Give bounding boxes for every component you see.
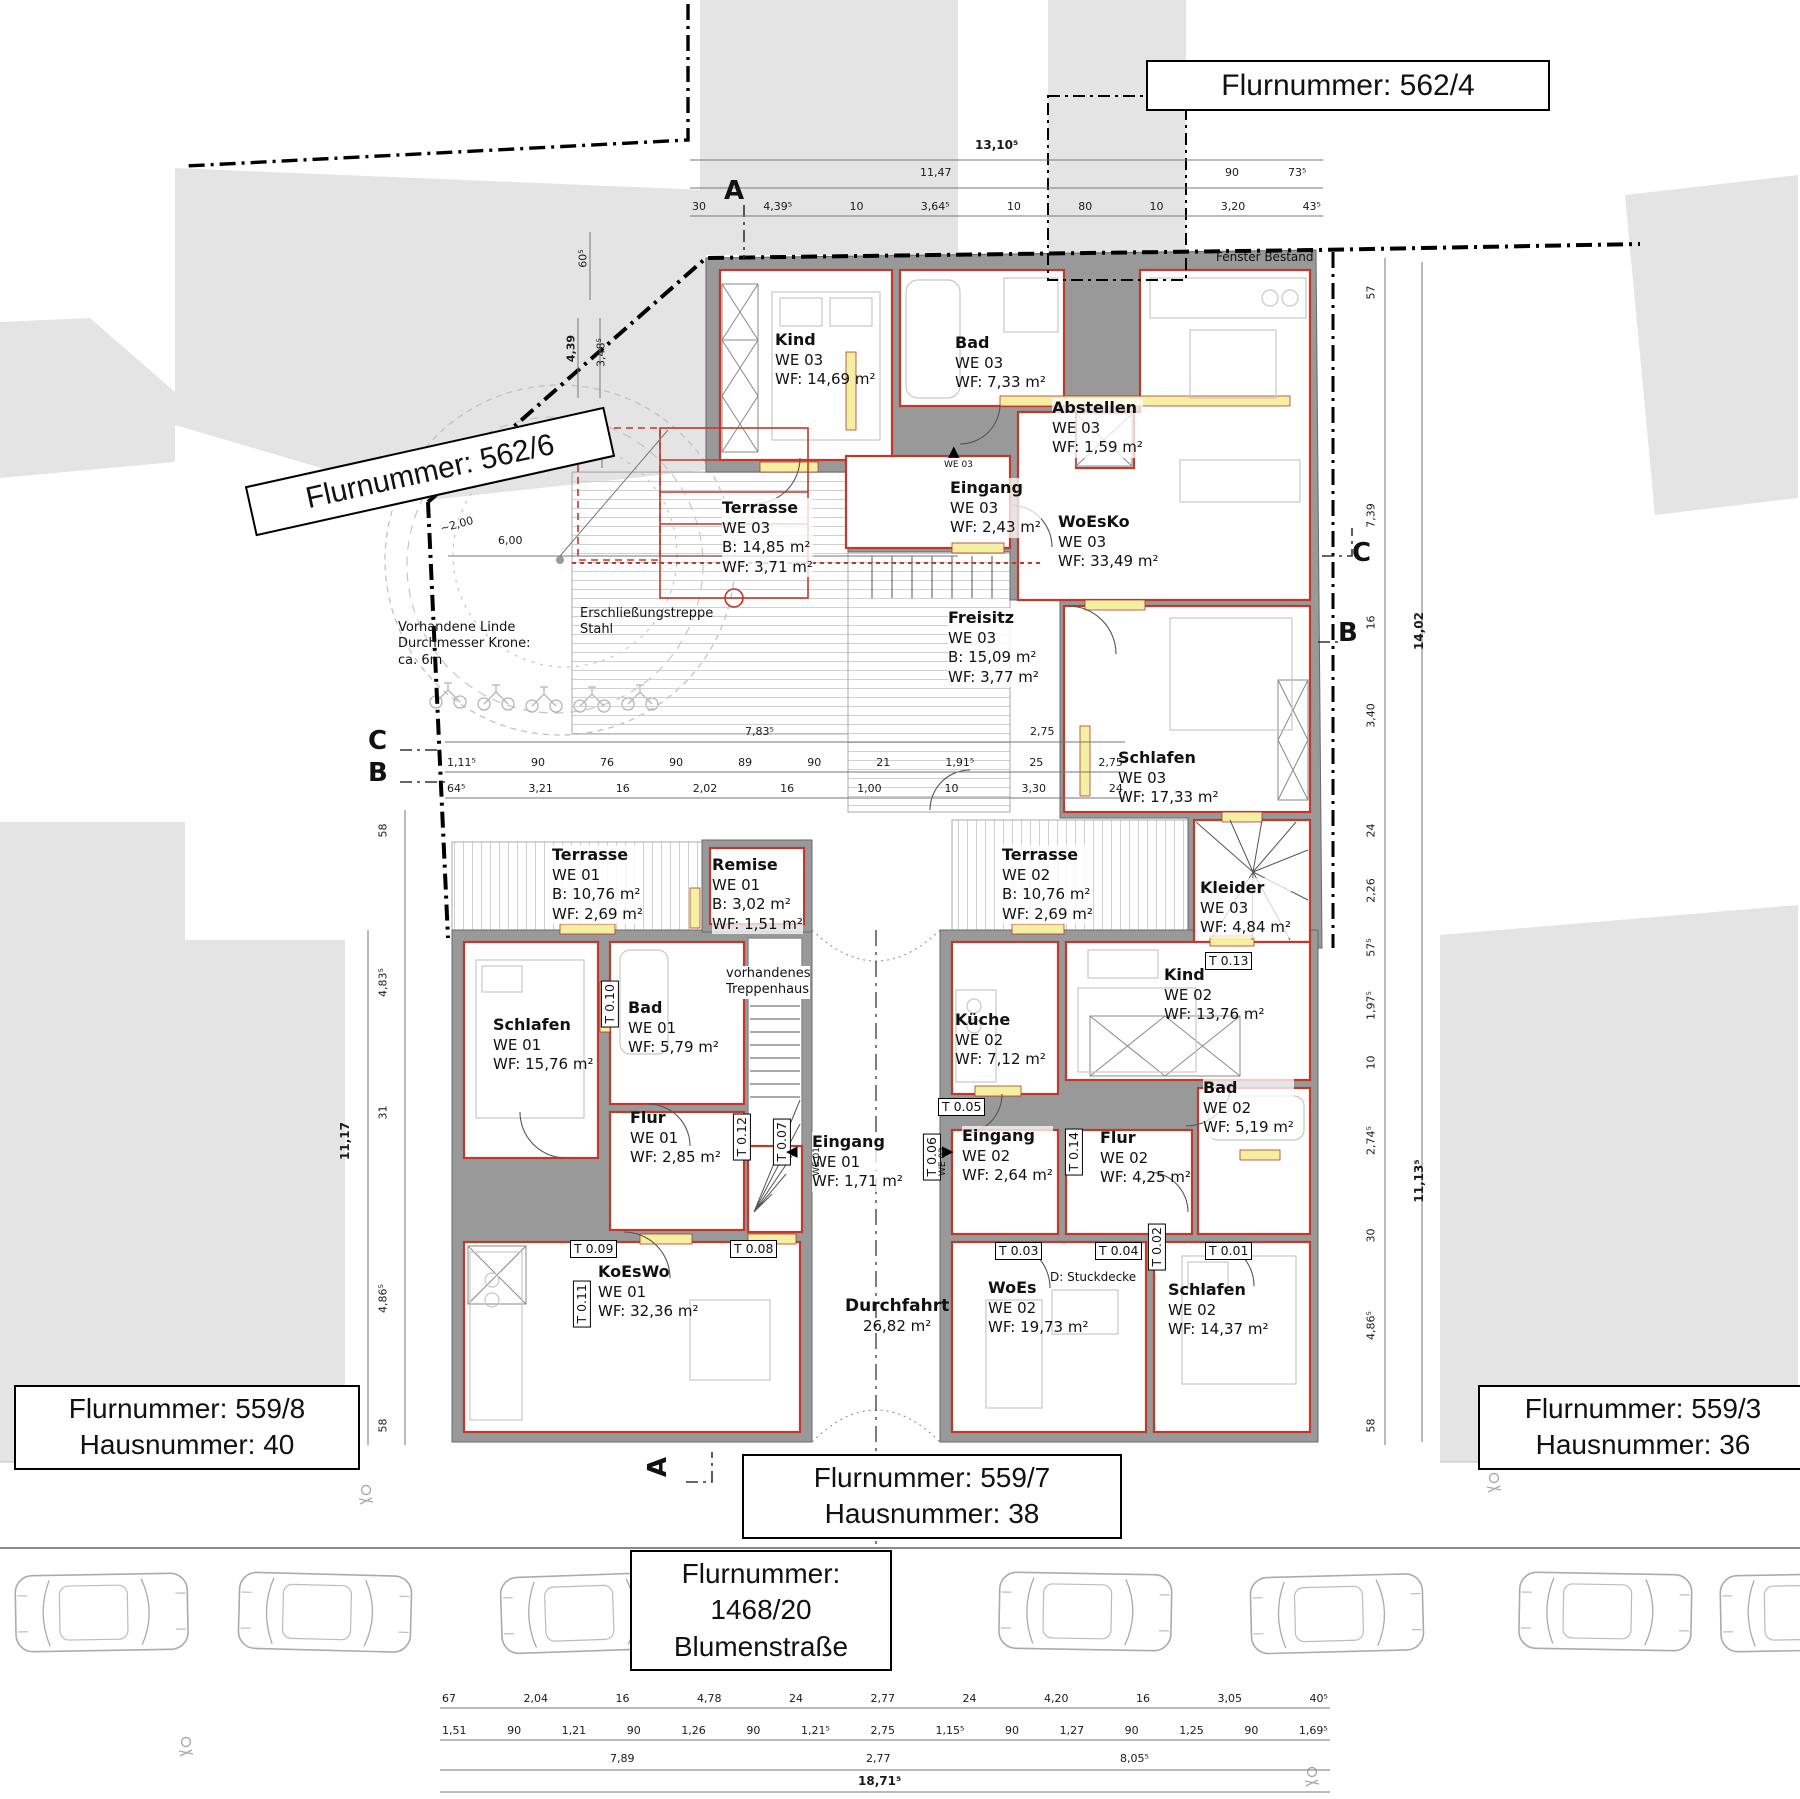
room-label-schlafen-we02: SchlafenWE 02 WF: 14,37 m² xyxy=(1168,1280,1268,1340)
room-info: WE 03 B: 15,09 m² WF: 3,77 m² xyxy=(948,629,1039,688)
room-name: Flur xyxy=(630,1108,721,1129)
dim-tree-6-00: 6,00 xyxy=(498,534,523,547)
dimension-value: 1,69⁵ xyxy=(1297,1724,1330,1737)
parcel-559-7-hausnummer: Hausnummer: 38 xyxy=(754,1496,1110,1532)
room-name: Schlafen xyxy=(1118,748,1218,769)
entry-tag-we02: WE 02 xyxy=(938,1147,948,1176)
dim-right-1: 57 xyxy=(1365,270,1378,316)
dim-top-total: 13,10⁵ xyxy=(975,138,1018,152)
dim-2-75-mid: 2,75 xyxy=(1030,725,1055,738)
room-name: Abstellen xyxy=(1052,398,1143,419)
dimension-value: 4,78 xyxy=(695,1692,724,1705)
dim-chain-bottom-row2: 1,51901,21901,26901,21⁵2,751,15⁵901,2790… xyxy=(440,1724,1330,1737)
door-tag-t0-08: T 0.08 xyxy=(730,1240,777,1258)
dimension-value: 1,11⁵ xyxy=(445,756,478,769)
dimension-value: 1,25 xyxy=(1177,1724,1206,1737)
street-flurnummer: Flurnummer: xyxy=(642,1556,880,1592)
dim-right-total-lower: 11,13⁵ xyxy=(1412,1158,1426,1204)
room-info: WE 03 WF: 1,59 m² xyxy=(1052,419,1143,458)
room-info: WE 01 WF: 15,76 m² xyxy=(493,1036,593,1075)
street-name: Blumenstraße xyxy=(642,1629,880,1665)
door-tag-t0-04: T 0.04 xyxy=(1095,1242,1142,1260)
car-icons xyxy=(15,1572,1800,1654)
room-label-freisitz-we03: FreisitzWE 03 B: 15,09 m² WF: 3,77 m² xyxy=(948,608,1039,687)
room-label-eingang-we01: EingangWE 01 WF: 1,71 m² xyxy=(812,1132,903,1192)
room-name: Küche xyxy=(955,1010,1046,1031)
dimension-value: 10 xyxy=(847,200,865,213)
annotation-treppenhaus: vorhandenes Treppenhaus xyxy=(726,966,810,999)
room-info: WE 02 WF: 5,19 m² xyxy=(1203,1099,1294,1138)
room-label-flur-we01: FlurWE 01 WF: 2,85 m² xyxy=(630,1108,721,1168)
dim-tree-60-5: 60⁵ xyxy=(577,236,590,282)
door-tag-t0-02: T 0.02 xyxy=(1148,1223,1166,1270)
dim-2-77-bottom: 2,77 xyxy=(866,1752,891,1765)
dim-8-05-5: 8,05⁵ xyxy=(1120,1752,1149,1765)
street-label-blumenstrasse: Flurnummer: 1468/20 Blumenstraße xyxy=(630,1550,892,1671)
parcel-559-3-hausnummer: Hausnummer: 36 xyxy=(1490,1427,1796,1463)
dim-right-12: 4,86⁵ xyxy=(1365,1303,1378,1349)
dimension-value: 1,91⁵ xyxy=(943,756,976,769)
dim-right-11: 30 xyxy=(1365,1213,1378,1259)
room-info: WE 03 WF: 17,33 m² xyxy=(1118,769,1218,808)
door-tag-t0-12: T 0.12 xyxy=(733,1113,751,1160)
annotation-linde: Vorhandene Linde Durchmesser Krone: ca. … xyxy=(398,620,531,669)
room-name: Flur xyxy=(1100,1128,1191,1149)
room-label-durchfahrt: Durchfahrt26,82 m² xyxy=(845,1295,949,1337)
room-info: WE 02 WF: 13,76 m² xyxy=(1164,986,1264,1025)
room-info: WE 01 WF: 5,79 m² xyxy=(628,1019,719,1058)
parcel-label-562-4: Flurnummer: 562/4 xyxy=(1146,60,1550,111)
dim-left-2: 4,83⁵ xyxy=(377,960,390,1006)
dimension-value: 3,21 xyxy=(526,782,555,795)
dimension-value: 3,05 xyxy=(1216,1692,1245,1705)
room-name: Kind xyxy=(775,330,875,351)
room-name: KoEsWo xyxy=(598,1262,698,1283)
room-info: WE 03 WF: 33,49 m² xyxy=(1058,533,1158,572)
room-label-abstellen-we03: AbstellenWE 03 WF: 1,59 m² xyxy=(1052,398,1143,458)
dimension-value: 16 xyxy=(778,782,796,795)
annotation-stuckdecke: D: Stuckdecke xyxy=(1050,1270,1136,1285)
dimension-value: 89 xyxy=(736,756,754,769)
dim-right-3: 16 xyxy=(1365,600,1378,646)
durchfahrt-lines xyxy=(812,930,940,1545)
dim-7-83-5: 7,83⁵ xyxy=(745,725,774,738)
dimension-value: 24 xyxy=(961,1692,979,1705)
room-label-bad-we02: BadWE 02 WF: 5,19 m² xyxy=(1203,1078,1294,1138)
room-label-schlafen-we01: SchlafenWE 01 WF: 15,76 m² xyxy=(493,1015,593,1075)
dim-left-1: 58 xyxy=(377,808,390,854)
room-info: WE 01 WF: 2,85 m² xyxy=(630,1129,721,1168)
room-info: WE 02 WF: 4,25 m² xyxy=(1100,1149,1191,1188)
room-info: WE 03 B: 14,85 m² WF: 3,71 m² xyxy=(722,519,813,578)
parcel-559-7-flurnummer: Flurnummer: 559/7 xyxy=(754,1460,1110,1496)
dimension-value: 1,21 xyxy=(560,1724,589,1737)
door-tag-t0-01: T 0.01 xyxy=(1205,1242,1252,1260)
dimension-value: 21 xyxy=(874,756,892,769)
dimension-value: 90 xyxy=(805,756,823,769)
entry-arrow-we03-icon: ▲ xyxy=(948,442,960,460)
room-info: WE 03 WF: 7,33 m² xyxy=(955,354,1046,393)
room-info: WE 01 B: 3,02 m² WF: 1,51 m² xyxy=(712,876,803,935)
dimension-value: 76 xyxy=(598,756,616,769)
room-info: WE 01 WF: 32,36 m² xyxy=(598,1283,698,1322)
door-tag-t0-11: T 0.11 xyxy=(573,1280,591,1327)
dim-right-4: 3,40 xyxy=(1365,693,1378,739)
parcel-label-559-7: Flurnummer: 559/7 Hausnummer: 38 xyxy=(742,1454,1122,1539)
dim-right-8: 1,97⁵ xyxy=(1365,983,1378,1029)
room-info: WE 02 WF: 19,73 m² xyxy=(988,1299,1088,1338)
dimension-value: 64⁵ xyxy=(445,782,467,795)
dimension-value: 1,15⁵ xyxy=(934,1724,967,1737)
room-label-kind-we03: KindWE 03 WF: 14,69 m² xyxy=(775,330,875,390)
dim-right-13: 58 xyxy=(1365,1403,1378,1449)
dimension-value: 1,00 xyxy=(855,782,884,795)
room-name: Eingang xyxy=(812,1132,903,1153)
room-label-terrasse-we03: TerrasseWE 03 B: 14,85 m² WF: 3,71 m² xyxy=(722,498,813,577)
dimension-value: 90 xyxy=(667,756,685,769)
room-name: Kleider xyxy=(1200,878,1291,899)
dimension-value: 90 xyxy=(744,1724,762,1737)
room-name: Freisitz xyxy=(948,608,1039,629)
door-tag-t0-13: T 0.13 xyxy=(1205,952,1252,970)
room-name: Terrasse xyxy=(1002,845,1093,866)
room-name: Durchfahrt xyxy=(845,1295,949,1317)
section-marker-b-left: B xyxy=(368,758,388,788)
dimension-value: 90 xyxy=(505,1724,523,1737)
room-info: WE 01 B: 10,76 m² WF: 2,69 m² xyxy=(552,866,643,925)
dimension-value: 16 xyxy=(614,1692,632,1705)
dim-left-4: 4,86⁵ xyxy=(377,1276,390,1322)
annotation-stahltreppe: Erschließungstreppe Stahl xyxy=(580,606,713,639)
section-marker-a-top: A xyxy=(724,176,744,206)
parcel-559-8-hausnummer: Hausnummer: 40 xyxy=(26,1427,348,1463)
dimension-value: 1,27 xyxy=(1058,1724,1087,1737)
dimension-value: 16 xyxy=(1134,1692,1152,1705)
room-name: Schlafen xyxy=(493,1015,593,1036)
room-info: WE 03 WF: 14,69 m² xyxy=(775,351,875,390)
dim-73-5: 73⁵ xyxy=(1288,166,1306,179)
dimension-value: 43⁵ xyxy=(1301,200,1323,213)
dimension-value: 90 xyxy=(1242,1724,1260,1737)
room-label-kueche-we02: KücheWE 02 WF: 7,12 m² xyxy=(955,1010,1046,1070)
section-marker-b-right: B xyxy=(1338,618,1358,648)
room-info: WE 03 WF: 2,43 m² xyxy=(950,499,1041,538)
dimension-value: 2,02 xyxy=(691,782,720,795)
room-label-terrasse-we02: TerrasseWE 02 B: 10,76 m² WF: 2,69 m² xyxy=(1002,845,1093,924)
room-label-woes-we02: WoEsWE 02 WF: 19,73 m² xyxy=(988,1278,1088,1338)
room-name: Bad xyxy=(1203,1078,1294,1099)
dimension-value: 10 xyxy=(1005,200,1023,213)
dimension-value: 30 xyxy=(690,200,708,213)
room-label-woesko-we03: WoEsKoWE 03 WF: 33,49 m² xyxy=(1058,512,1158,572)
room-label-schlafen-we03: SchlafenWE 03 WF: 17,33 m² xyxy=(1118,748,1218,808)
dim-right-9: 10 xyxy=(1365,1040,1378,1086)
dim-tree-3-48-5: 3,48⁵ xyxy=(595,330,608,376)
dim-right-10: 2,74⁵ xyxy=(1365,1118,1378,1164)
dim-bottom-total: 18,71⁵ xyxy=(858,1774,901,1788)
dimension-value: 2,75 xyxy=(868,1724,897,1737)
dimension-value: 80 xyxy=(1076,200,1094,213)
entry-tag-we01: WE 01 xyxy=(812,1147,822,1176)
dim-left-5: 58 xyxy=(377,1403,390,1449)
dim-chain-top-row3: 304,39⁵103,64⁵1080103,2043⁵ xyxy=(690,200,1323,213)
dimension-value: 3,30 xyxy=(1019,782,1048,795)
room-name: Eingang xyxy=(962,1126,1053,1147)
dimension-value: 4,39⁵ xyxy=(761,200,794,213)
room-label-flur-we02: FlurWE 02 WF: 4,25 m² xyxy=(1100,1128,1191,1188)
room-info: WE 02 B: 10,76 m² WF: 2,69 m² xyxy=(1002,866,1093,925)
dimension-value: 10 xyxy=(1148,200,1166,213)
dimension-value: 2,04 xyxy=(522,1692,551,1705)
room-label-terrasse-we01: TerrasseWE 01 B: 10,76 m² WF: 2,69 m² xyxy=(552,845,643,924)
dim-chain-mid-row3: 64⁵3,21162,02161,00103,3024 xyxy=(445,782,1125,795)
dim-right-2: 7,39 xyxy=(1365,493,1378,539)
dimension-value: 16 xyxy=(614,782,632,795)
entry-arrow-we01-icon: ◀ xyxy=(786,1142,798,1160)
room-info: WE 02 WF: 2,64 m² xyxy=(962,1147,1053,1186)
section-marker-c-right: C xyxy=(1352,538,1371,568)
room-label-bad-we03: BadWE 03 WF: 7,33 m² xyxy=(955,333,1046,393)
dimension-value: 2,77 xyxy=(869,1692,898,1705)
parcel-label-559-8: Flurnummer: 559/8 Hausnummer: 40 xyxy=(14,1385,360,1470)
dim-left-total: 11,17 xyxy=(338,1118,352,1164)
dimension-value: 67 xyxy=(440,1692,458,1705)
dim-right-6: 2,26 xyxy=(1365,868,1378,914)
door-tag-t0-05: T 0.05 xyxy=(938,1098,985,1116)
street-parcel-number: 1468/20 xyxy=(642,1592,880,1628)
dimension-value: 10 xyxy=(943,782,961,795)
floor-plan-canvas: Flurnummer: 562/4 Flurnummer: 562/6 Flur… xyxy=(0,0,1800,1799)
dimension-value: 1,51 xyxy=(440,1724,469,1737)
room-label-bad-we01: BadWE 01 WF: 5,79 m² xyxy=(628,998,719,1058)
room-info: WE 01 WF: 1,71 m² xyxy=(812,1153,903,1192)
dimension-value: 3,20 xyxy=(1219,200,1248,213)
room-name: Terrasse xyxy=(552,845,643,866)
room-name: Bad xyxy=(955,333,1046,354)
dim-11-47: 11,47 xyxy=(920,166,952,179)
dimension-value: 25 xyxy=(1027,756,1045,769)
room-info: WE 03 WF: 4,84 m² xyxy=(1200,899,1291,938)
dimension-value: 3,64⁵ xyxy=(919,200,952,213)
door-tag-t0-03: T 0.03 xyxy=(995,1242,1042,1260)
annotation-fenster-bestand: Fenster Bestand xyxy=(1216,250,1313,265)
dim-chain-mid-row2: 1,11⁵9076908990211,91⁵252,75 xyxy=(445,756,1125,769)
entry-tag-we03: WE 03 xyxy=(944,460,973,470)
room-name: WoEsKo xyxy=(1058,512,1158,533)
room-name: Remise xyxy=(712,855,803,876)
parcel-label-559-3: Flurnummer: 559/3 Hausnummer: 36 xyxy=(1478,1385,1800,1470)
room-label-kleider-we03: KleiderWE 03 WF: 4,84 m² xyxy=(1200,878,1291,938)
dim-7-89: 7,89 xyxy=(610,1752,635,1765)
door-tag-t0-09: T 0.09 xyxy=(570,1240,617,1258)
dim-right-total-upper: 14,02 xyxy=(1412,608,1426,654)
room-label-kind-we02: KindWE 02 WF: 13,76 m² xyxy=(1164,965,1264,1025)
dim-tree-4-39: 4,39 xyxy=(565,326,578,372)
room-label-koeswo-we01: KoEsWoWE 01 WF: 32,36 m² xyxy=(598,1262,698,1322)
door-tag-t0-10: T 0.10 xyxy=(601,980,619,1027)
door-tag-t0-14: T 0.14 xyxy=(1065,1128,1083,1175)
dim-90-top: 90 xyxy=(1225,166,1239,179)
dimension-value: 1,26 xyxy=(679,1724,708,1737)
section-marker-c-left: C xyxy=(368,726,387,756)
dimension-value: 40⁵ xyxy=(1308,1692,1330,1705)
dimension-value: 24 xyxy=(787,1692,805,1705)
dimension-value: 90 xyxy=(529,756,547,769)
dimension-value: 90 xyxy=(625,1724,643,1737)
dimension-value: 1,21⁵ xyxy=(799,1724,832,1737)
room-name: Schlafen xyxy=(1168,1280,1268,1301)
room-name: Terrasse xyxy=(722,498,813,519)
room-name: Eingang xyxy=(950,478,1041,499)
dim-right-7: 57⁵ xyxy=(1365,925,1378,971)
room-info: 26,82 m² xyxy=(845,1317,949,1337)
dim-right-5: 24 xyxy=(1365,808,1378,854)
room-info: WE 02 WF: 7,12 m² xyxy=(955,1031,1046,1070)
room-info: WE 02 WF: 14,37 m² xyxy=(1168,1301,1268,1340)
room-label-eingang-we03: EingangWE 03 WF: 2,43 m² xyxy=(950,478,1041,538)
room-label-eingang-we02: EingangWE 02 WF: 2,64 m² xyxy=(962,1126,1053,1186)
parcel-559-3-flurnummer: Flurnummer: 559/3 xyxy=(1490,1391,1796,1427)
dimension-value: 90 xyxy=(1123,1724,1141,1737)
dim-left-3: 31 xyxy=(377,1090,390,1136)
dimension-value: 4,20 xyxy=(1042,1692,1071,1705)
dimension-value: 90 xyxy=(1003,1724,1021,1737)
parcel-559-8-flurnummer: Flurnummer: 559/8 xyxy=(26,1391,348,1427)
room-label-remise-we01: RemiseWE 01 B: 3,02 m² WF: 1,51 m² xyxy=(712,855,803,934)
dim-chain-bottom-row1: 672,04164,78242,77244,20163,0540⁵ xyxy=(440,1692,1330,1705)
room-name: Bad xyxy=(628,998,719,1019)
section-marker-a-bottom: A xyxy=(643,1457,673,1477)
